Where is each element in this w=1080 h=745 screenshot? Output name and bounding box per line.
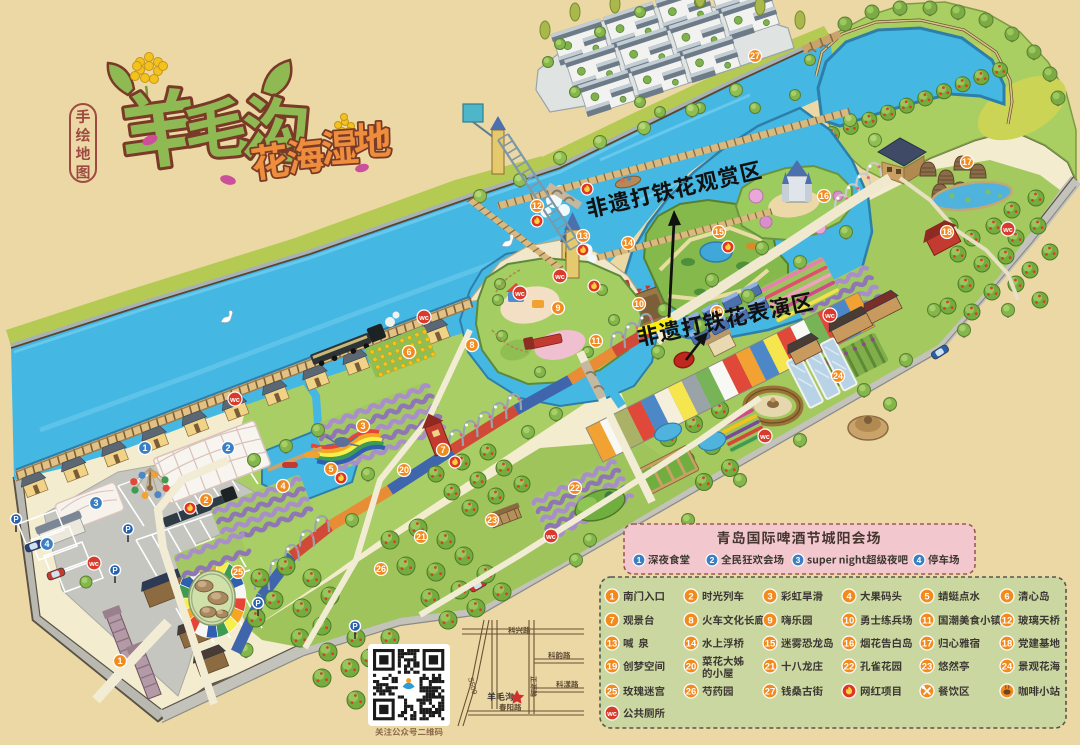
svg-text:16: 16 xyxy=(819,191,829,201)
svg-text:11: 11 xyxy=(591,336,601,346)
svg-text:12: 12 xyxy=(1002,615,1013,626)
svg-text:8: 8 xyxy=(469,340,474,350)
svg-text:4: 4 xyxy=(280,481,285,491)
svg-text:6: 6 xyxy=(1004,591,1009,602)
svg-text:9: 9 xyxy=(555,303,560,313)
svg-text:P: P xyxy=(13,515,19,524)
svg-text:9: 9 xyxy=(767,615,772,626)
svg-text:5: 5 xyxy=(924,591,930,602)
svg-text:11: 11 xyxy=(922,615,933,626)
svg-text:10: 10 xyxy=(634,299,644,309)
svg-text:25: 25 xyxy=(233,567,243,577)
svg-text:27: 27 xyxy=(765,686,776,697)
svg-text:3: 3 xyxy=(767,591,772,602)
svg-text:4: 4 xyxy=(44,539,49,549)
svg-text:19: 19 xyxy=(607,661,618,672)
svg-text:26: 26 xyxy=(686,686,697,697)
svg-text:20: 20 xyxy=(686,661,697,672)
svg-text:13: 13 xyxy=(607,638,618,649)
svg-text:18: 18 xyxy=(1002,638,1013,649)
svg-text:12: 12 xyxy=(532,201,542,211)
svg-text:wc: wc xyxy=(824,311,835,320)
svg-text:7: 7 xyxy=(440,445,445,455)
svg-text:3: 3 xyxy=(360,421,365,431)
svg-text:wc: wc xyxy=(554,272,565,281)
svg-text:P: P xyxy=(112,566,118,575)
svg-text:8: 8 xyxy=(688,615,693,626)
svg-text:22: 22 xyxy=(570,483,580,493)
svg-text:18: 18 xyxy=(942,227,952,237)
svg-text:26: 26 xyxy=(376,564,386,574)
svg-text:4: 4 xyxy=(917,555,922,565)
svg-text:14: 14 xyxy=(686,638,697,649)
svg-text:P: P xyxy=(255,599,261,608)
svg-text:wc: wc xyxy=(759,432,770,441)
svg-text:2: 2 xyxy=(225,443,230,453)
svg-text:1: 1 xyxy=(637,555,642,565)
svg-text:wc: wc xyxy=(545,532,556,541)
svg-text:5: 5 xyxy=(328,464,333,474)
svg-text:wc: wc xyxy=(606,709,617,718)
svg-text:1: 1 xyxy=(609,591,615,602)
svg-text:21: 21 xyxy=(416,532,426,542)
svg-text:wc: wc xyxy=(514,289,525,298)
svg-text:wc: wc xyxy=(418,313,429,322)
svg-text:23: 23 xyxy=(922,661,933,672)
svg-text:2: 2 xyxy=(203,495,208,505)
svg-text:14: 14 xyxy=(623,238,633,248)
svg-text:15: 15 xyxy=(714,227,724,237)
svg-text:24: 24 xyxy=(1002,661,1013,672)
svg-text:13: 13 xyxy=(578,231,588,241)
svg-text:10: 10 xyxy=(844,615,855,626)
svg-text:23: 23 xyxy=(487,515,497,525)
svg-text:2: 2 xyxy=(688,591,693,602)
svg-text:6: 6 xyxy=(406,347,411,357)
svg-text:4: 4 xyxy=(846,591,852,602)
svg-text:wc: wc xyxy=(1002,225,1013,234)
svg-text:21: 21 xyxy=(765,661,776,672)
svg-text:25: 25 xyxy=(607,686,618,697)
svg-text:1: 1 xyxy=(117,656,122,666)
svg-text:15: 15 xyxy=(765,638,776,649)
svg-text:16: 16 xyxy=(844,638,855,649)
svg-text:wc: wc xyxy=(88,559,99,568)
svg-text:3: 3 xyxy=(93,498,98,508)
svg-text:2: 2 xyxy=(710,555,715,565)
svg-text:20: 20 xyxy=(399,465,409,475)
svg-text:27: 27 xyxy=(750,51,760,61)
svg-text:wc: wc xyxy=(229,395,240,404)
svg-text:24: 24 xyxy=(833,371,843,381)
svg-text:17: 17 xyxy=(962,157,972,167)
svg-text:3: 3 xyxy=(796,555,801,565)
svg-text:7: 7 xyxy=(609,615,614,626)
svg-text:P: P xyxy=(125,525,131,534)
svg-text:22: 22 xyxy=(844,661,855,672)
svg-text:17: 17 xyxy=(922,638,933,649)
svg-text:1: 1 xyxy=(142,443,147,453)
svg-text:P: P xyxy=(352,622,358,631)
